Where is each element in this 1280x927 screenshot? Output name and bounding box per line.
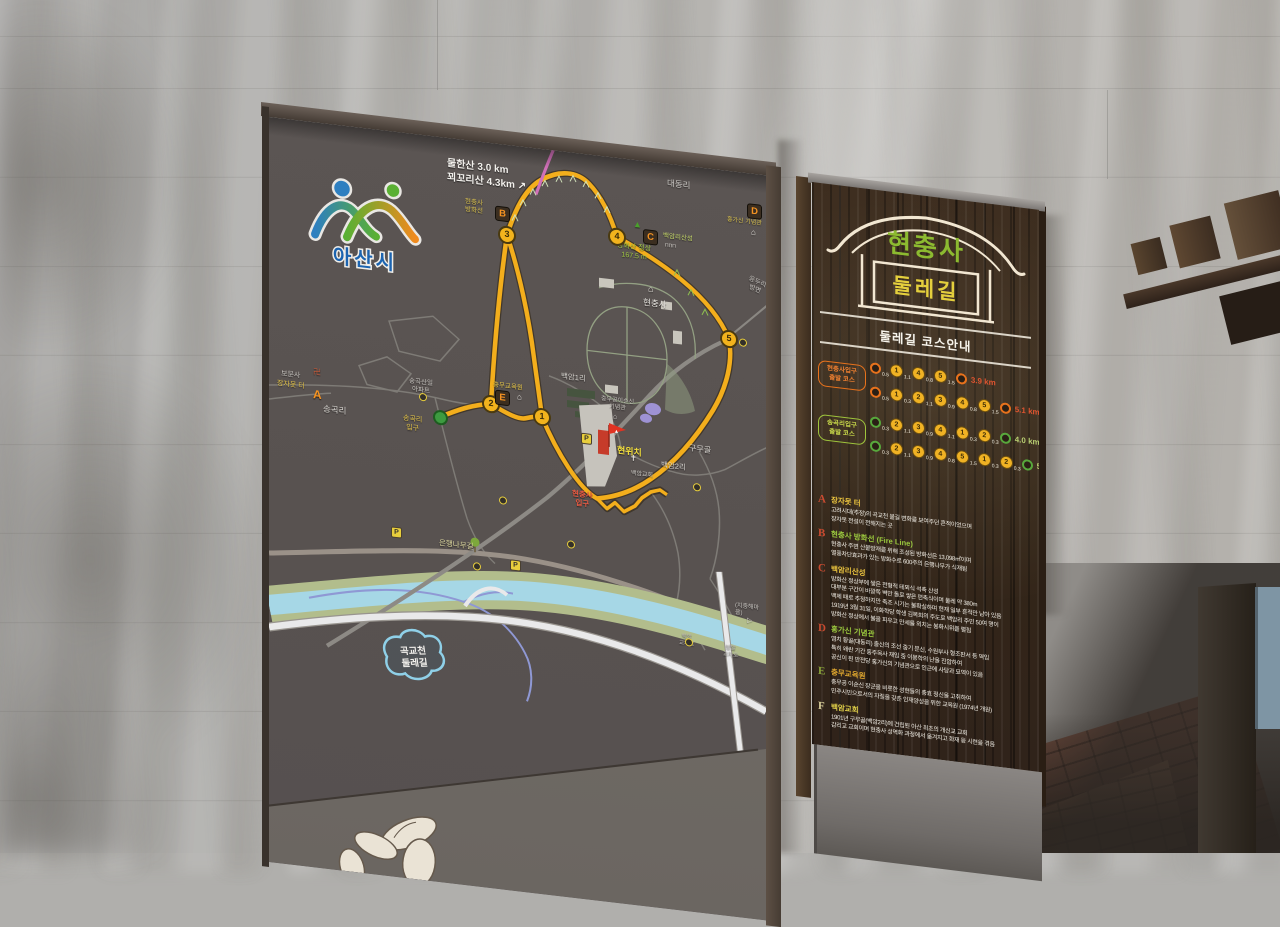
pergola-underside-shadow	[1219, 277, 1280, 345]
course-node-3: 3	[912, 420, 925, 435]
map-label: 송곡리	[323, 403, 346, 416]
church-cross-icon: ✝	[630, 454, 637, 463]
map-label: 송곡산일 아파트	[409, 377, 433, 396]
map-sign-lower-panel	[269, 117, 766, 920]
map-label: 현충사 입구	[572, 489, 593, 510]
info-sign-left-post	[796, 176, 811, 798]
course-start-dot	[870, 440, 881, 452]
poi-ring-marker	[473, 562, 481, 571]
map-sign-frame-left	[262, 106, 269, 867]
trail-point-2: 2	[482, 394, 500, 414]
map-label: 백암1리	[561, 371, 586, 383]
map-badges-layer: 12345ABCDEPPP	[269, 117, 766, 920]
stream-line	[309, 569, 531, 701]
leg-distance: 0.3	[1014, 465, 1021, 472]
expressway-ramp	[719, 572, 745, 791]
course-node-4: 4	[956, 395, 969, 410]
course-node-2: 2	[978, 428, 991, 443]
course-end-dot	[956, 372, 967, 384]
leg-distance: 1.1	[926, 400, 933, 407]
leg-distance: 0.3	[992, 439, 999, 446]
map-panel: ▲ 곡교천 둘레길 아산시	[269, 117, 766, 920]
gokgyocheon-bubble: 곡교천 둘레길	[382, 629, 447, 679]
pergola-beam	[1224, 190, 1280, 260]
dark-post	[1198, 583, 1256, 853]
expressway-ramp-casing	[719, 572, 745, 791]
course-group-label: 송곡리입구 출발 코스	[818, 414, 866, 445]
poi-ring-marker	[693, 483, 701, 492]
course-node-1: 1	[890, 387, 903, 402]
leg-distance: 0.9	[926, 430, 933, 437]
peak-icon: ▲	[633, 220, 642, 230]
trail-map-graphic: ▲ 곡교천 둘레길 아산시	[269, 117, 766, 920]
course-start-dot	[870, 386, 881, 398]
leg-distance: 0.8	[970, 406, 977, 413]
map-label: 백암 교차로	[679, 633, 694, 648]
map-label: 응두리 방면	[745, 275, 766, 297]
map-label: 대동리	[667, 178, 690, 191]
course-node-3: 3	[934, 392, 947, 407]
leg-distance: 1.1	[904, 452, 911, 459]
leg-distance: 0.3	[904, 398, 911, 405]
leg-distance: 1.1	[904, 374, 911, 381]
map-sign-frame-right	[766, 165, 781, 927]
expressway-casing	[269, 592, 766, 711]
fortress-wall-icon: ΠΠΠ	[665, 244, 676, 250]
hyeonchungsa-house-icon: ⌂	[648, 285, 653, 295]
poi-ring-marker	[567, 540, 575, 549]
legend-letter: F	[818, 699, 831, 730]
course-node-5: 5	[978, 398, 991, 413]
course-node-2: 2	[890, 417, 903, 432]
map-label: 현충사 방화선	[465, 198, 483, 216]
leg-distance: 0.5	[882, 371, 889, 378]
info-sign-right-frame	[1039, 206, 1046, 807]
map-label: 꾀꼬리산 4.3km ↗	[447, 172, 526, 193]
asan-city-name: 아산시	[333, 245, 397, 275]
course-node-4: 4	[912, 366, 925, 381]
trail-point-5: 5	[720, 329, 738, 349]
main-access-road	[327, 294, 725, 693]
leg-distance: 0.8	[926, 376, 933, 383]
map-labels-layer: 물한산 3.0 km꾀꼬리산 4.3km ↗대동리현충사 방화선백암리산성방화산…	[269, 117, 766, 920]
trail-point-4: 4	[608, 227, 626, 247]
title-emblem: 현충사 둘레길	[822, 191, 1029, 334]
leg-distance: 1.1	[948, 433, 955, 440]
museum-house-icon: ⌂	[613, 413, 617, 420]
leg-distance: 0.9	[948, 403, 955, 410]
ginkgo-tree-icon	[471, 537, 480, 553]
map-label: 백암리산성	[663, 232, 693, 243]
info-sign-wood-panel: 현충사 둘레길 둘레길 코스안내 현충사입구 출발 코스0.511.140.85…	[812, 182, 1039, 772]
legend-letter: C	[818, 561, 831, 618]
poi-ring-marker	[419, 393, 427, 402]
course-node-2: 2	[1000, 455, 1013, 470]
svg-text:▲: ▲	[614, 429, 619, 436]
wooden-pergola-beams	[1128, 182, 1280, 332]
course-node-4: 4	[934, 422, 947, 437]
poi-ring-marker	[739, 338, 747, 347]
course-end-dot	[1022, 458, 1033, 470]
emblem-title-bottom: 둘레길	[893, 273, 960, 305]
trail-route	[440, 158, 730, 524]
map-letter-D: D	[747, 203, 762, 220]
course-start-dot	[870, 416, 881, 428]
map-letter-A: A	[313, 388, 322, 401]
course-total-distance: 5.2 km	[1037, 461, 1039, 473]
legend-letter: E	[818, 665, 831, 696]
parking-icon: P	[510, 559, 521, 571]
map-letter-B: B	[495, 206, 510, 223]
songgok-entrance-marker	[433, 409, 448, 426]
map-label: 현충사	[643, 297, 666, 310]
hyeonchungsa-compound	[567, 274, 695, 499]
overpass-arc	[465, 585, 507, 611]
course-guide-section: 둘레길 코스안내 현충사입구 출발 코스0.511.140.851.53.9 k…	[812, 310, 1039, 484]
course-group-label: 현충사입구 출발 코스	[818, 360, 866, 391]
trail-point-3: 3	[498, 225, 516, 245]
legend-letter: B	[818, 527, 831, 558]
map-label: 보문사	[281, 370, 300, 381]
leg-distance: 1.5	[948, 379, 955, 386]
ridge-road	[725, 299, 766, 346]
map-label: 방말 교차로	[723, 644, 738, 659]
map-label: 물한산 3.0 km	[447, 158, 509, 177]
memorial-house-icon: ⌂	[751, 229, 756, 238]
river-banks	[269, 560, 766, 665]
leg-distance: 1.5	[970, 460, 977, 467]
map-label: 충무교육원	[493, 381, 523, 392]
map-letter-E: E	[495, 390, 510, 407]
poi-ring-marker	[685, 638, 693, 647]
course-node-1: 1	[890, 363, 903, 378]
leg-distance: 0.3	[882, 449, 889, 456]
ridge-tree-marks	[674, 270, 708, 316]
asan-city-logo: 아산시	[315, 174, 415, 277]
course-end-dot	[1000, 402, 1011, 414]
leg-distance: 0.3	[970, 436, 977, 443]
river-water	[269, 560, 766, 665]
parking-icon: P	[581, 433, 592, 445]
course-start-dot	[870, 362, 881, 374]
course-node-4: 4	[934, 446, 947, 461]
course-total-distance: 3.9 km	[971, 375, 996, 387]
poi-ring-marker	[499, 496, 507, 505]
pergola-beam	[1169, 216, 1220, 269]
trail-map-sign-board: ▲ 곡교천 둘레길 아산시	[269, 117, 766, 920]
course-total-distance: 4.0 km	[1015, 434, 1039, 446]
panel-divider	[269, 749, 758, 807]
parking-icon: P	[391, 526, 402, 538]
magnolia-flower-art	[324, 783, 554, 920]
bubble-line1: 곡교천	[399, 646, 426, 658]
expressway	[269, 592, 766, 711]
blue-sign-edge	[1255, 587, 1280, 729]
map-label: 장자못 터	[277, 380, 305, 392]
trail-point-1: 1	[533, 407, 551, 427]
map-label: 송곡리 입구	[403, 415, 422, 434]
map-label: 卍	[313, 367, 321, 378]
leg-distance: 1.5	[992, 409, 999, 416]
course-node-5: 5	[956, 449, 969, 464]
bubble-line2: 둘레길	[401, 657, 429, 670]
tree-shadow-patch	[0, 0, 300, 853]
legend-section: A장자못 터고려시대(추정)의 곡교천 물길 변화를 보여주던 흔적이었으며장자…	[812, 488, 1039, 761]
course-info-sign-board: 현충사 둘레길 둘레길 코스안내 현충사입구 출발 코스0.511.140.85…	[812, 182, 1039, 881]
hanok-roof-emblem: 현충사 둘레길	[822, 191, 1029, 334]
leg-distance: 0.9	[926, 454, 933, 461]
leg-distance: 0.3	[992, 463, 999, 470]
course-end-dot	[1000, 432, 1011, 444]
map-label: 충무공이순신 기념관	[601, 396, 634, 415]
riverside-road	[269, 528, 766, 641]
leg-distance: 0.5	[882, 395, 889, 402]
course-node-1: 1	[956, 425, 969, 440]
pergola-beam	[1131, 237, 1168, 275]
legend-letter: A	[818, 493, 831, 524]
map-label: 방화산 정상 167.5 m	[617, 242, 651, 263]
map-label: 은행나무길	[439, 538, 474, 551]
course-node-1: 1	[978, 452, 991, 467]
map-label: 백암2리	[661, 460, 686, 472]
map-letter-C: C	[643, 229, 658, 246]
course-total-distance: 5.1 km	[1015, 404, 1039, 416]
course-node-2: 2	[890, 441, 903, 456]
map-label: 홍가신 기념관	[727, 217, 762, 228]
course-node-2: 2	[912, 390, 925, 405]
map-label: 백암교회	[631, 471, 653, 481]
current-location-flag: ▲	[609, 423, 626, 449]
map-label: (지중해마을)	[735, 603, 766, 621]
boat-icon: ▷	[747, 617, 752, 625]
course-node-3: 3	[912, 444, 925, 459]
map-label: 구무골	[689, 443, 711, 455]
fire-line-marks	[512, 169, 610, 233]
leg-distance: 1.1	[904, 428, 911, 435]
course-node-5: 5	[934, 368, 947, 383]
minor-roads	[269, 297, 766, 658]
education-house-icon: ⌂	[517, 393, 522, 402]
emblem-title-top: 현충사	[887, 227, 965, 266]
map-label: 현위치	[617, 445, 642, 459]
legend-letter: D	[818, 622, 831, 662]
leg-distance: 0.8	[948, 457, 955, 464]
leg-distance: 0.3	[882, 425, 889, 432]
